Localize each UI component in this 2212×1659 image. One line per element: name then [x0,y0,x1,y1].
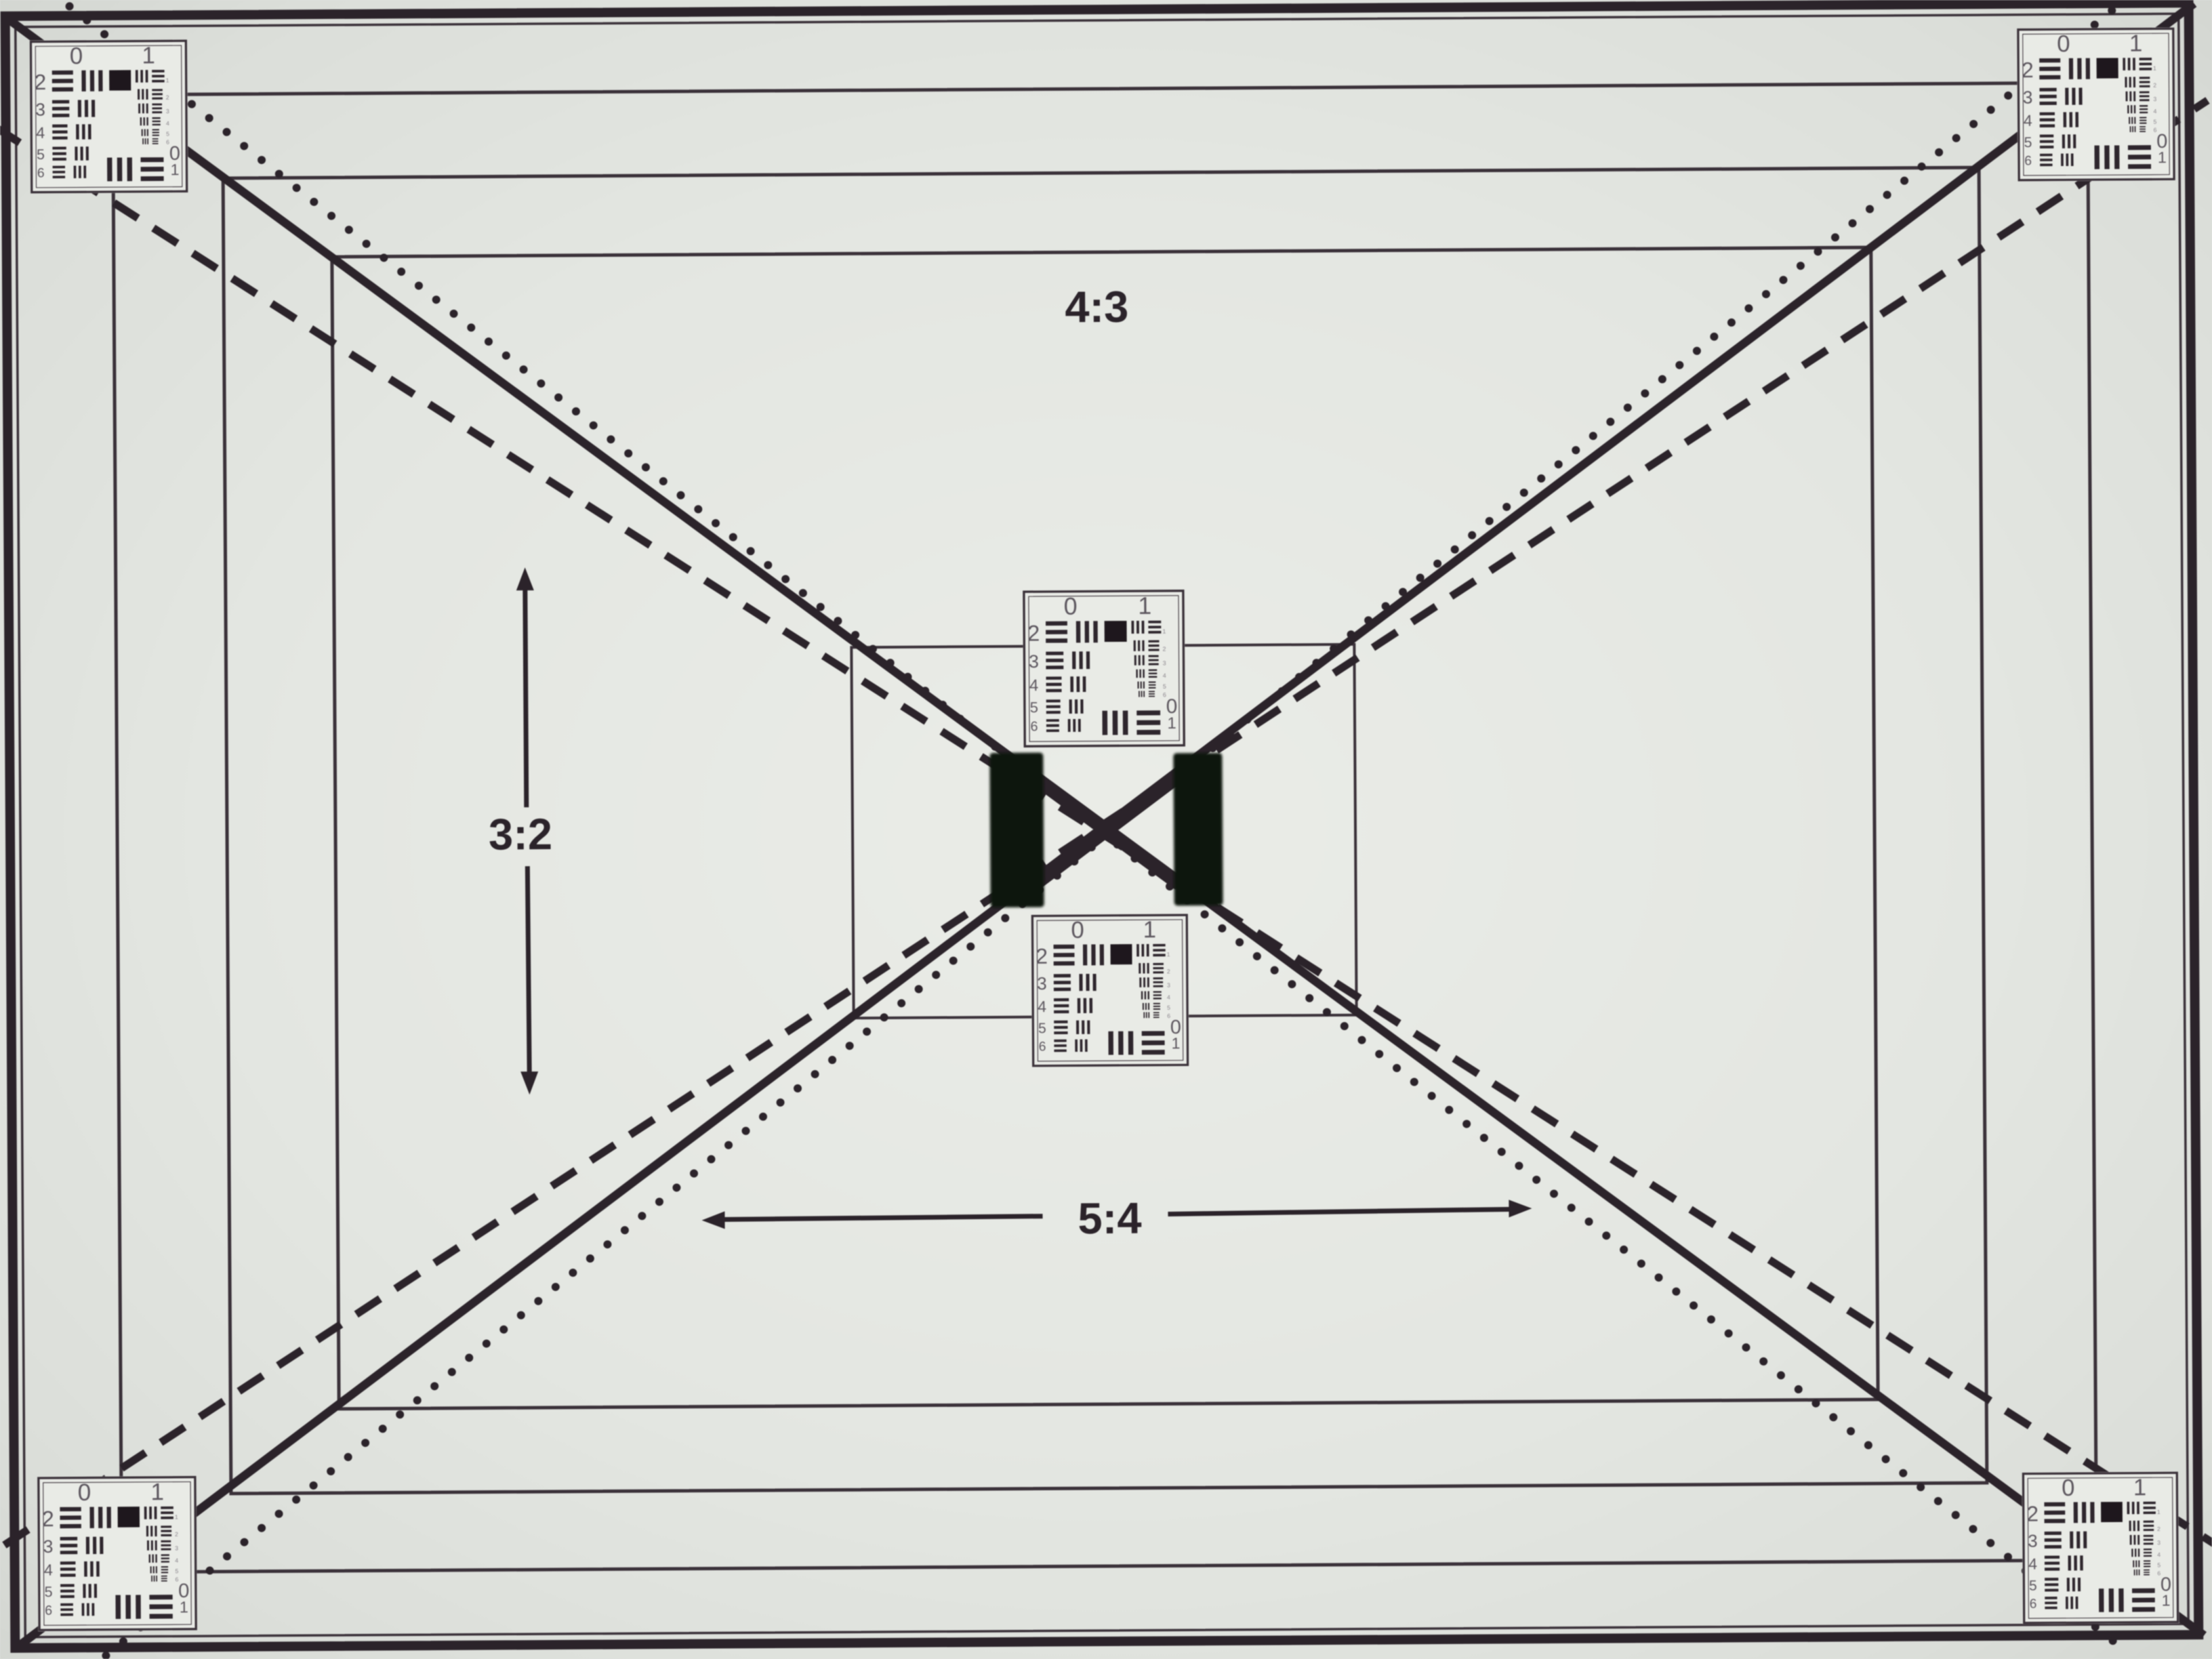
svg-text:3:2: 3:2 [489,809,552,859]
svg-text:4:3: 4:3 [1065,282,1128,332]
svg-text:5:4: 5:4 [1078,1193,1141,1244]
